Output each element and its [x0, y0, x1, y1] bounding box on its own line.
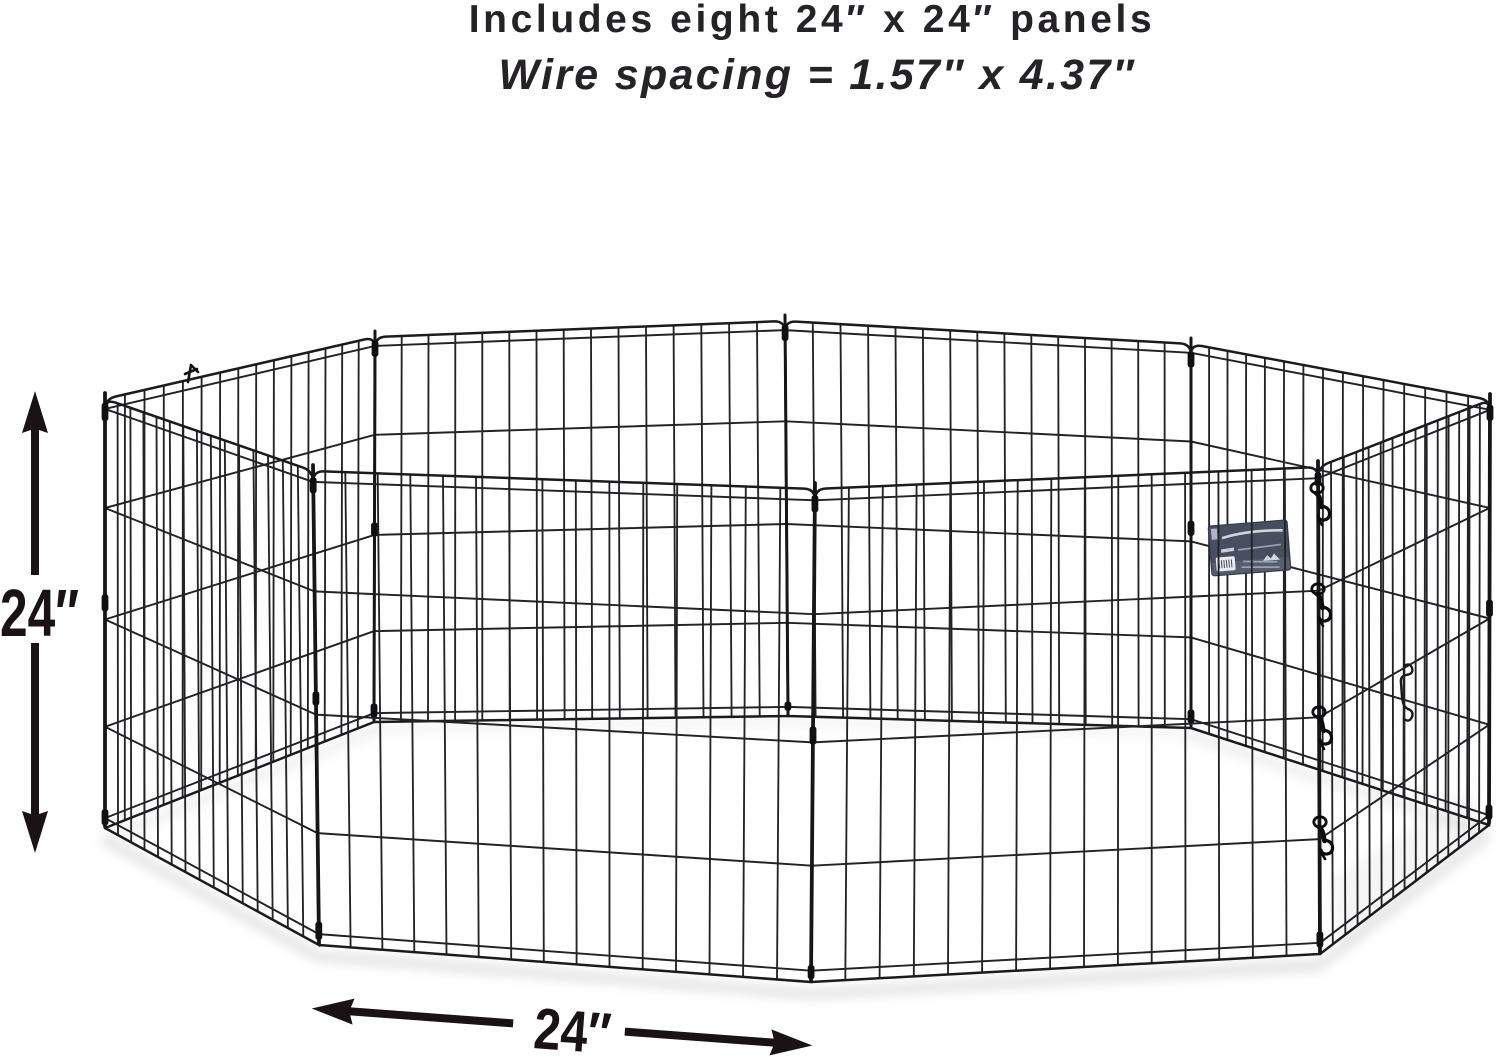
svg-text:24″: 24″: [532, 996, 614, 1057]
svg-text:Wire spacing = 1.57″ x 4.37″: Wire spacing = 1.57″ x 4.37″: [498, 51, 1135, 99]
svg-text:Includes eight 24″ x 24″ panel: Includes eight 24″ x 24″ panels: [469, 0, 1156, 41]
svg-text:24″: 24″: [0, 576, 79, 651]
